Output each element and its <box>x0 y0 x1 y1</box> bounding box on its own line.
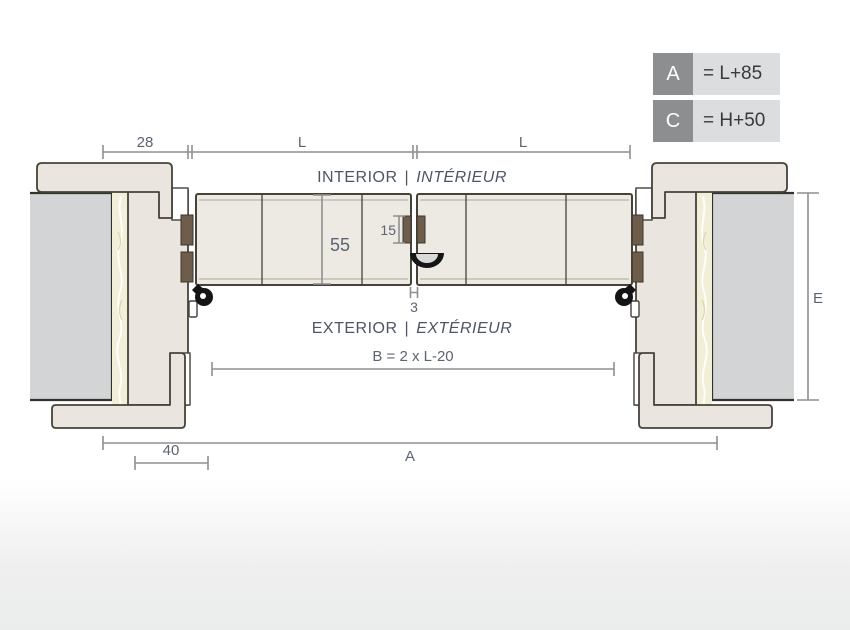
legend-value-a: = L+85 <box>693 53 780 95</box>
label-dim-40: 40 <box>163 442 180 459</box>
left-frame-gasket-bottom <box>181 252 193 282</box>
label-interior-en: INTERIOR <box>317 169 397 186</box>
left-wall <box>30 193 112 400</box>
left-hook-hole <box>200 293 206 299</box>
label-dim-3: 3 <box>410 299 418 315</box>
legend-row-c: C = H+50 <box>653 100 780 142</box>
door-section-diagram: 28 L L INTERIOR|INTÉRIEUR 55 15 3 EXTERI… <box>0 0 850 630</box>
label-exterior: EXTERIOR|EXTÉRIEUR <box>312 318 513 337</box>
dim-line-top <box>103 145 630 159</box>
legend-key-a: A <box>653 53 693 95</box>
left-hook-pin <box>189 301 197 317</box>
door-leaf-right <box>417 194 632 285</box>
meeting-gasket-right <box>417 216 425 243</box>
left-frame-gasket-top <box>181 215 193 245</box>
right-wall <box>712 193 794 400</box>
label-interior-fr: INTÉRIEUR <box>416 167 507 186</box>
right-hook-pin <box>631 301 639 317</box>
label-dim-a: A <box>405 448 415 465</box>
label-dim-l-right: L <box>519 134 527 151</box>
dim-line-3 <box>411 287 418 298</box>
label-dim-15: 15 <box>380 222 396 238</box>
label-dim-b: B = 2 x L-20 <box>372 348 453 365</box>
label-interior-separator: | <box>405 169 410 186</box>
label-interior: INTERIOR|INTÉRIEUR <box>317 167 507 186</box>
label-exterior-en: EXTERIOR <box>312 320 398 337</box>
left-leaf-hook-seal <box>189 284 213 317</box>
label-dim-55: 55 <box>330 235 350 255</box>
label-dim-28: 28 <box>137 134 154 151</box>
legend-row-a: A = L+85 <box>653 53 780 95</box>
label-dim-l-left: L <box>298 134 306 151</box>
legend: A = L+85 C = H+50 <box>653 53 780 142</box>
door-leaf-left <box>196 194 411 285</box>
legend-value-c: = H+50 <box>693 100 780 142</box>
legend-key-c: C <box>653 100 693 142</box>
label-exterior-fr: EXTÉRIEUR <box>416 318 512 337</box>
meeting-gasket-left <box>403 216 411 243</box>
right-hook-hole <box>622 293 628 299</box>
label-dim-e: E <box>813 290 823 307</box>
label-exterior-separator: | <box>405 320 410 337</box>
